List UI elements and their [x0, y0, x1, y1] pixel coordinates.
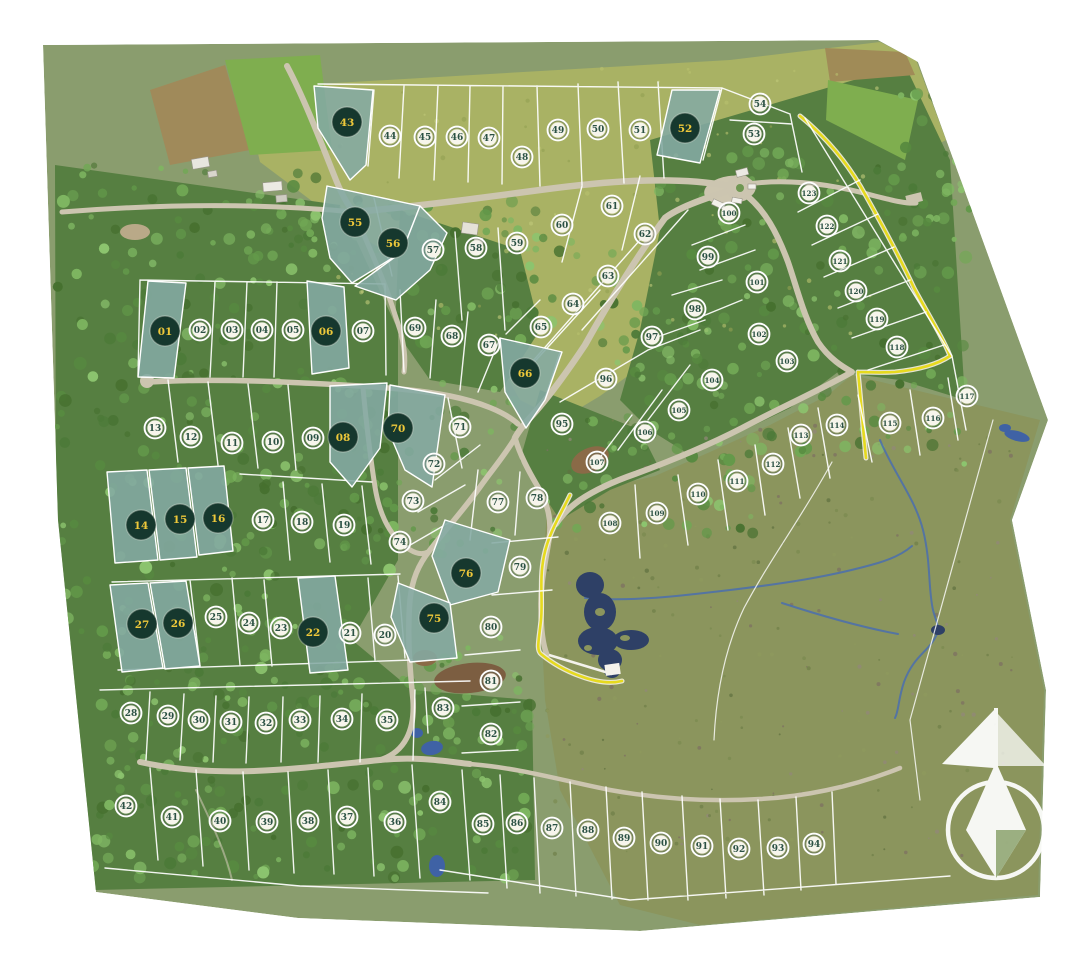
lot-number: 75 [427, 613, 442, 625]
lot-number: 112 [765, 460, 780, 469]
lot-number: 81 [485, 677, 498, 687]
lot-marker-32[interactable]: 32 [256, 713, 277, 734]
lot-marker-102[interactable]: 102 [749, 324, 770, 345]
lot-marker-05[interactable]: 05 [283, 320, 304, 341]
lot-marker-36[interactable]: 36 [385, 812, 406, 833]
lot-number: 98 [689, 305, 702, 315]
lot-marker-03[interactable]: 03 [222, 320, 243, 341]
lot-number: 23 [275, 624, 288, 634]
lot-marker-65[interactable]: 65 [531, 317, 552, 338]
lot-marker-16[interactable]: 16 [203, 503, 233, 533]
lot-marker-88[interactable]: 88 [578, 820, 599, 841]
lot-number: 99 [702, 253, 715, 263]
lot-number: 71 [454, 423, 467, 433]
lot-number: 67 [483, 341, 496, 351]
lot-marker-39[interactable]: 39 [257, 812, 278, 833]
lot-number: 36 [389, 818, 402, 828]
lot-marker-115[interactable]: 115 [880, 413, 901, 434]
lot-marker-98[interactable]: 98 [685, 299, 706, 320]
lot-number: 49 [552, 126, 565, 136]
lot-marker-91[interactable]: 91 [692, 836, 713, 857]
lot-number: 38 [302, 817, 315, 827]
lot-number: 37 [341, 813, 354, 823]
lot-number: 35 [381, 716, 394, 726]
lot-marker-17[interactable]: 17 [253, 510, 274, 531]
lot-marker-21[interactable]: 21 [340, 623, 361, 644]
lot-number: 97 [646, 333, 659, 343]
lot-number: 72 [428, 460, 441, 470]
lot-number: 61 [606, 202, 619, 212]
lot-number: 93 [772, 844, 785, 854]
lot-marker-84[interactable]: 84 [430, 792, 451, 813]
lot-number: 06 [319, 326, 334, 338]
lot-marker-57[interactable]: 57 [423, 240, 444, 261]
lot-number: 94 [808, 840, 821, 850]
lot-marker-99[interactable]: 99 [698, 247, 719, 268]
lot-marker-30[interactable]: 30 [189, 710, 210, 731]
lot-marker-63[interactable]: 63 [598, 266, 619, 287]
lot-number: 100 [721, 209, 736, 218]
lot-marker-121[interactable]: 121 [830, 251, 851, 272]
lot-number: 119 [869, 315, 884, 324]
map-svg: 0102030405060708091011121314151617181920… [0, 0, 1080, 957]
lot-number: 85 [477, 820, 490, 830]
lot-number: 65 [535, 323, 548, 333]
lot-marker-76[interactable]: 76 [451, 558, 481, 588]
lot-number: 62 [639, 230, 652, 240]
lot-marker-93[interactable]: 93 [768, 838, 789, 859]
lot-marker-112[interactable]: 112 [763, 454, 784, 475]
lot-number: 13 [149, 424, 162, 434]
lot-number: 92 [733, 845, 746, 855]
lot-number: 105 [671, 406, 686, 415]
lot-marker-64[interactable]: 64 [563, 294, 584, 315]
lot-number: 05 [287, 326, 300, 336]
lot-number: 68 [446, 332, 459, 342]
lot-marker-61[interactable]: 61 [602, 196, 623, 217]
lot-number: 60 [556, 221, 569, 231]
lot-marker-75[interactable]: 75 [419, 603, 449, 633]
lot-marker-04[interactable]: 04 [252, 320, 273, 341]
lot-marker-42[interactable]: 42 [116, 796, 137, 817]
lot-number: 70 [391, 423, 406, 435]
lot-number: 122 [819, 222, 834, 231]
lot-marker-77[interactable]: 77 [488, 492, 509, 513]
lot-number: 22 [306, 627, 321, 639]
lot-marker-71[interactable]: 71 [450, 417, 471, 438]
lot-number: 14 [134, 520, 149, 532]
lot-number: 10 [267, 438, 280, 448]
lot-marker-103[interactable]: 103 [777, 351, 798, 372]
lot-marker-33[interactable]: 33 [290, 710, 311, 731]
lot-number: 39 [261, 818, 274, 828]
lot-marker-25[interactable]: 25 [206, 607, 227, 628]
lot-marker-105[interactable]: 105 [669, 400, 690, 421]
lot-number: 51 [634, 126, 647, 136]
lot-number: 16 [211, 513, 226, 525]
lot-marker-55[interactable]: 55 [340, 207, 370, 237]
lot-number: 53 [748, 130, 761, 140]
lot-marker-58[interactable]: 58 [466, 238, 487, 259]
lot-number: 17 [257, 516, 270, 526]
lot-number: 108 [602, 519, 617, 528]
lot-number: 66 [518, 368, 533, 380]
lot-marker-81[interactable]: 81 [481, 671, 502, 692]
lot-number: 02 [194, 326, 207, 336]
lot-number: 50 [592, 125, 605, 135]
lot-marker-41[interactable]: 41 [162, 807, 183, 828]
lot-number: 64 [567, 300, 580, 310]
lot-marker-24[interactable]: 24 [239, 613, 260, 634]
lot-marker-72[interactable]: 72 [424, 454, 445, 475]
lot-number: 96 [600, 375, 613, 385]
lot-number: 41 [166, 813, 179, 823]
lot-number: 29 [162, 712, 175, 722]
lot-marker-116[interactable]: 116 [923, 408, 944, 429]
lot-number: 47 [483, 134, 496, 144]
lot-marker-122[interactable]: 122 [817, 216, 838, 237]
lot-number: 09 [307, 434, 320, 444]
lot-number: 58 [470, 244, 483, 254]
lot-number: 44 [384, 132, 397, 142]
lot-marker-22[interactable]: 22 [298, 617, 328, 647]
lot-number: 11 [226, 439, 239, 449]
lot-marker-50[interactable]: 50 [588, 119, 609, 140]
lot-marker-01[interactable]: 01 [150, 316, 180, 346]
lot-marker-97[interactable]: 97 [642, 327, 663, 348]
lot-marker-114[interactable]: 114 [827, 415, 848, 436]
lot-number: 31 [225, 718, 238, 728]
lot-marker-69[interactable]: 69 [405, 318, 426, 339]
lot-marker-09[interactable]: 09 [303, 428, 324, 449]
lot-number: 24 [243, 619, 256, 629]
lot-number: 59 [511, 239, 524, 249]
lot-marker-89[interactable]: 89 [614, 828, 635, 849]
lot-number: 04 [256, 326, 269, 336]
lot-marker-37[interactable]: 37 [337, 807, 358, 828]
lot-number: 101 [749, 278, 764, 287]
lot-number: 20 [379, 631, 392, 641]
lot-number: 90 [655, 839, 668, 849]
lot-marker-82[interactable]: 82 [481, 724, 502, 745]
lot-number: 114 [829, 421, 844, 430]
lot-number: 111 [729, 477, 744, 486]
lot-number: 120 [848, 287, 863, 296]
lot-number: 07 [357, 327, 370, 337]
lot-marker-53[interactable]: 53 [744, 124, 765, 145]
lot-number: 117 [959, 392, 974, 401]
lot-marker-68[interactable]: 68 [442, 326, 463, 347]
lot-number: 110 [690, 490, 705, 499]
lot-number: 116 [925, 414, 940, 423]
lot-number: 107 [589, 458, 604, 467]
lot-marker-48[interactable]: 48 [512, 147, 533, 168]
lot-marker-94[interactable]: 94 [804, 834, 825, 855]
lot-number: 32 [260, 719, 273, 729]
lot-marker-13[interactable]: 13 [145, 418, 166, 439]
lot-number: 76 [459, 568, 474, 580]
lot-marker-07[interactable]: 07 [353, 321, 374, 342]
lot-marker-110[interactable]: 110 [688, 484, 709, 505]
lot-number: 15 [173, 514, 188, 526]
lot-number: 42 [120, 802, 133, 812]
lot-marker-12[interactable]: 12 [181, 427, 202, 448]
lot-marker-85[interactable]: 85 [473, 814, 494, 835]
lot-marker-100[interactable]: 100 [719, 203, 740, 224]
lot-marker-104[interactable]: 104 [702, 370, 723, 391]
lot-marker-51[interactable]: 51 [630, 120, 651, 141]
lot-marker-28[interactable]: 28 [121, 703, 142, 724]
lot-number: 91 [696, 842, 709, 852]
lot-number: 80 [485, 623, 498, 633]
lot-number: 73 [407, 497, 420, 507]
lot-marker-18[interactable]: 18 [292, 512, 313, 533]
lot-marker-59[interactable]: 59 [507, 233, 528, 254]
lot-number: 79 [514, 563, 527, 573]
lot-marker-02[interactable]: 02 [190, 320, 211, 341]
lot-number: 12 [185, 433, 198, 443]
lot-marker-120[interactable]: 120 [846, 281, 867, 302]
lot-marker-31[interactable]: 31 [221, 712, 242, 733]
lot-marker-107[interactable]: 107 [587, 452, 608, 473]
lot-number: 69 [409, 324, 422, 334]
lot-number: 74 [394, 538, 407, 548]
lot-marker-117[interactable]: 117 [957, 386, 978, 407]
lot-marker-123[interactable]: 123 [799, 183, 820, 204]
lot-marker-38[interactable]: 38 [298, 811, 319, 832]
lot-number: 113 [793, 431, 808, 440]
lot-number: 86 [511, 819, 524, 829]
lot-marker-34[interactable]: 34 [332, 709, 353, 730]
lot-marker-45[interactable]: 45 [415, 127, 436, 148]
lot-number: 84 [434, 798, 447, 808]
lot-marker-14[interactable]: 14 [126, 510, 156, 540]
lot-number: 27 [135, 619, 150, 631]
lot-marker-40[interactable]: 40 [210, 811, 231, 832]
lot-number: 40 [214, 817, 227, 827]
lot-marker-60[interactable]: 60 [552, 215, 573, 236]
site-plan-map: 0102030405060708091011121314151617181920… [0, 0, 1080, 957]
lot-marker-20[interactable]: 20 [375, 625, 396, 646]
lot-marker-67[interactable]: 67 [479, 335, 500, 356]
lot-number: 109 [649, 509, 664, 518]
lot-marker-79[interactable]: 79 [510, 557, 531, 578]
lot-marker-108[interactable]: 108 [600, 513, 621, 534]
lot-marker-10[interactable]: 10 [263, 432, 284, 453]
lot-marker-80[interactable]: 80 [481, 617, 502, 638]
lot-number: 34 [336, 715, 349, 725]
lot-number: 83 [437, 704, 450, 714]
lot-marker-78[interactable]: 78 [527, 488, 548, 509]
lot-number: 104 [704, 376, 719, 385]
lot-marker-106[interactable]: 106 [635, 422, 656, 443]
lot-marker-54[interactable]: 54 [750, 94, 771, 115]
lot-number: 88 [582, 826, 595, 836]
lot-number: 33 [294, 716, 307, 726]
lot-marker-111[interactable]: 111 [727, 471, 748, 492]
lot-number: 21 [344, 629, 357, 639]
lot-number: 106 [637, 428, 652, 437]
lot-marker-06[interactable]: 06 [311, 316, 341, 346]
lot-number: 121 [832, 257, 847, 266]
lot-number: 78 [531, 494, 544, 504]
lot-marker-73[interactable]: 73 [403, 491, 424, 512]
lot-marker-35[interactable]: 35 [377, 710, 398, 731]
lot-marker-26[interactable]: 26 [163, 608, 193, 638]
lot-marker-119[interactable]: 119 [867, 309, 888, 330]
lot-marker-08[interactable]: 08 [328, 422, 358, 452]
lot-marker-70[interactable]: 70 [383, 413, 413, 443]
lot-number: 48 [516, 153, 529, 163]
lot-number: 52 [678, 123, 693, 135]
lot-number: 57 [427, 246, 440, 256]
lot-marker-109[interactable]: 109 [647, 503, 668, 524]
lot-number: 08 [336, 432, 351, 444]
lot-number: 89 [618, 834, 631, 844]
lot-marker-66[interactable]: 66 [510, 358, 540, 388]
lot-number: 56 [386, 238, 401, 250]
lot-number: 43 [340, 117, 355, 129]
lot-marker-27[interactable]: 27 [127, 609, 157, 639]
lot-number: 54 [754, 100, 767, 110]
lot-marker-118[interactable]: 118 [887, 337, 908, 358]
lot-number: 118 [889, 343, 904, 352]
lot-number: 55 [348, 217, 363, 229]
lot-number: 01 [158, 326, 173, 338]
lot-marker-74[interactable]: 74 [390, 532, 411, 553]
lot-number: 87 [546, 824, 559, 834]
lot-marker-52[interactable]: 52 [670, 113, 700, 143]
lot-marker-96[interactable]: 96 [596, 369, 617, 390]
lot-marker-29[interactable]: 29 [158, 706, 179, 727]
lot-marker-49[interactable]: 49 [548, 120, 569, 141]
lot-number: 123 [801, 189, 816, 198]
lot-number: 18 [296, 518, 309, 528]
lot-marker-15[interactable]: 15 [165, 504, 195, 534]
lot-number: 77 [492, 498, 505, 508]
lot-marker-43[interactable]: 43 [332, 107, 362, 137]
lot-number: 03 [226, 326, 239, 336]
lot-number: 26 [171, 618, 186, 630]
lot-number: 115 [882, 419, 897, 428]
lot-marker-23[interactable]: 23 [271, 618, 292, 639]
lot-number: 19 [338, 521, 351, 531]
lot-marker-83[interactable]: 83 [433, 698, 454, 719]
lot-marker-87[interactable]: 87 [542, 818, 563, 839]
lot-marker-86[interactable]: 86 [507, 813, 528, 834]
lot-marker-46[interactable]: 46 [447, 127, 468, 148]
lot-marker-62[interactable]: 62 [635, 224, 656, 245]
lot-number: 103 [779, 357, 794, 366]
lot-number: 63 [602, 272, 615, 282]
lot-number: 102 [751, 330, 766, 339]
lot-marker-113[interactable]: 113 [791, 425, 812, 446]
lot-marker-44[interactable]: 44 [380, 126, 401, 147]
lot-number: 46 [451, 133, 464, 143]
lot-number: 45 [419, 133, 432, 143]
lot-number: 95 [556, 420, 569, 430]
lot-marker-56[interactable]: 56 [378, 228, 408, 258]
lot-number: 82 [485, 730, 498, 740]
lot-number: 28 [125, 709, 138, 719]
lot-marker-101[interactable]: 101 [747, 272, 768, 293]
lot-number: 30 [193, 716, 206, 726]
lot-marker-19[interactable]: 19 [334, 515, 355, 536]
lot-marker-92[interactable]: 92 [729, 839, 750, 860]
lot-marker-95[interactable]: 95 [552, 414, 573, 435]
lot-marker-47[interactable]: 47 [479, 128, 500, 149]
lot-marker-90[interactable]: 90 [651, 833, 672, 854]
lot-number: 25 [210, 613, 223, 623]
lot-marker-11[interactable]: 11 [222, 433, 243, 454]
